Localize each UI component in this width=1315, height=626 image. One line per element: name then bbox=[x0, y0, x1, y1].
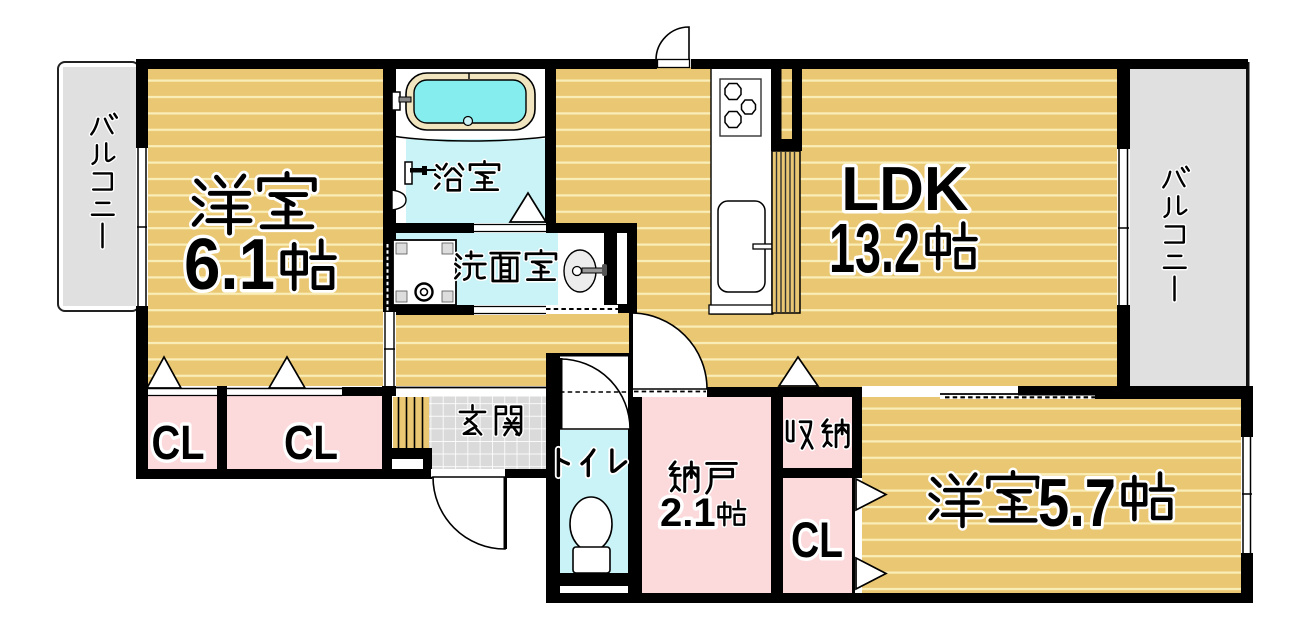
svg-text:6.1: 6.1 bbox=[184, 225, 275, 305]
svg-text:CL: CL bbox=[284, 417, 338, 470]
svg-text:5.7: 5.7 bbox=[1038, 465, 1116, 541]
svg-text:13.2: 13.2 bbox=[829, 209, 920, 287]
svg-text:2.1: 2.1 bbox=[660, 491, 716, 535]
svg-text:CL: CL bbox=[791, 512, 843, 568]
svg-text:CL: CL bbox=[152, 417, 205, 470]
